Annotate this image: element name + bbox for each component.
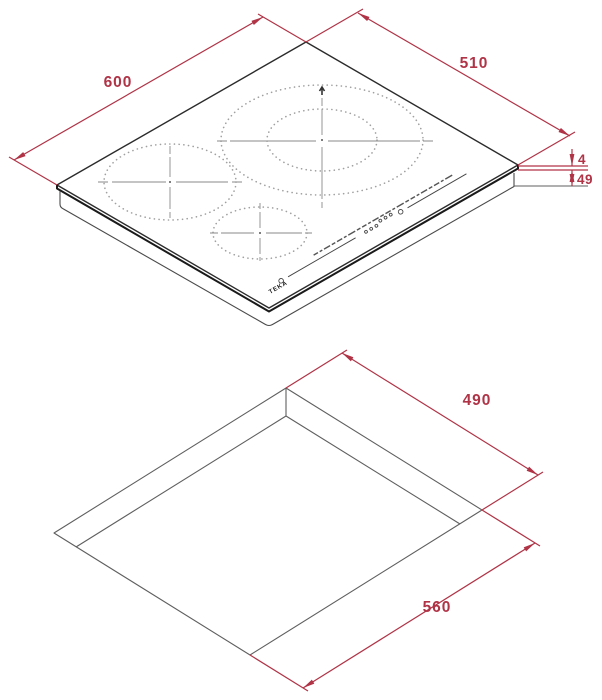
extension-line bbox=[482, 510, 540, 546]
dimension-label-4: 4 bbox=[578, 152, 586, 167]
cutout-inner-bottom bbox=[76, 416, 460, 547]
extension-line bbox=[306, 9, 363, 42]
zone-center-dot bbox=[169, 181, 171, 183]
dimension-label-510: 510 bbox=[460, 55, 489, 72]
zone-center-dot bbox=[259, 232, 261, 234]
dimension-label-560: 560 bbox=[423, 599, 452, 616]
dimension-heights: 4 49 bbox=[514, 149, 593, 187]
dimension-label-490: 490 bbox=[463, 392, 492, 409]
extension-line bbox=[518, 132, 575, 165]
dimension-label-49: 49 bbox=[577, 172, 593, 187]
extension-line bbox=[258, 14, 306, 42]
installation-diagram-page: TEKA 600 51 bbox=[0, 0, 602, 700]
cutout-opening bbox=[54, 388, 482, 655]
dimension-560: 560 bbox=[250, 510, 540, 691]
dimension-label-600: 600 bbox=[104, 74, 133, 91]
extension-line bbox=[482, 472, 543, 510]
dimension-490: 490 bbox=[286, 350, 543, 510]
extension-line bbox=[250, 655, 308, 691]
zone-center-dot bbox=[321, 139, 323, 141]
dimension-line bbox=[303, 543, 535, 688]
cutout-isometric-view: 490 560 bbox=[54, 350, 543, 691]
hob-isometric-view: TEKA 600 51 bbox=[9, 9, 593, 326]
dimension-line bbox=[342, 353, 538, 475]
technical-drawing: TEKA 600 51 bbox=[0, 0, 602, 700]
extension-line bbox=[9, 157, 57, 185]
extension-line bbox=[286, 350, 347, 388]
